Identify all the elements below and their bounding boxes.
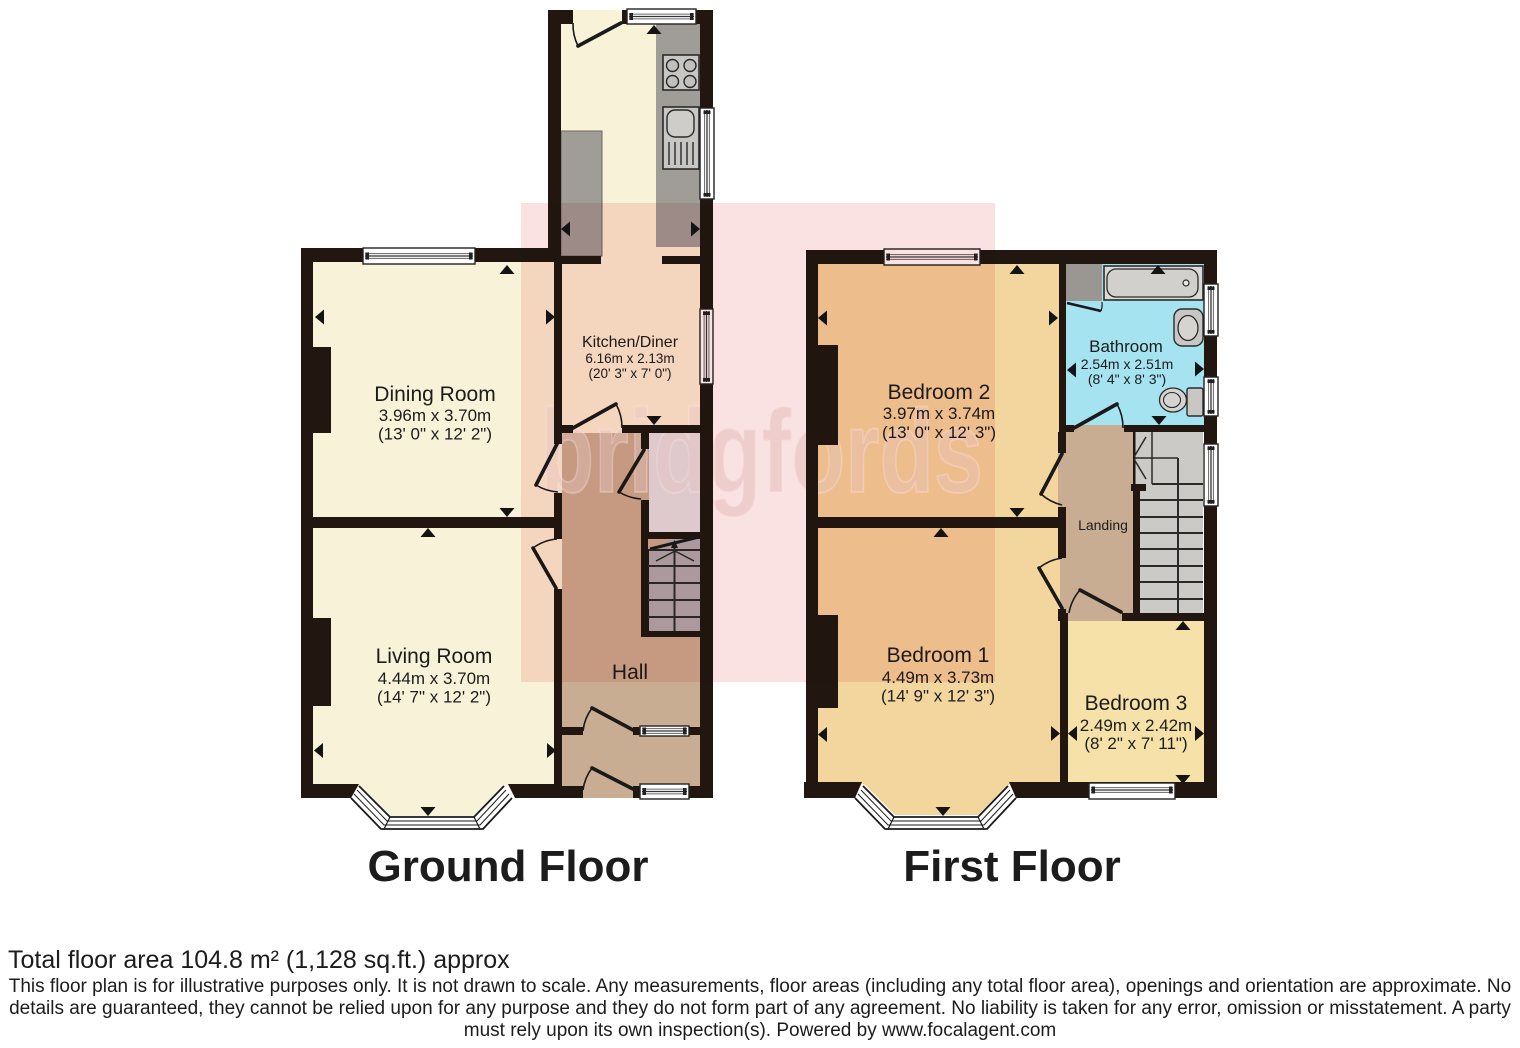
svg-text:3.96m x 3.70m: 3.96m x 3.70m (379, 406, 491, 425)
svg-text:(8' 4" x 8' 3"): (8' 4" x 8' 3") (1088, 371, 1166, 387)
svg-text:(14' 9" x 12' 3"): (14' 9" x 12' 3") (881, 687, 995, 706)
svg-text:Bathroom: Bathroom (1089, 337, 1163, 356)
svg-text:must rely upon its own inspect: must rely upon its own inspection(s). Po… (464, 1020, 1056, 1041)
svg-text:2.54m x 2.51m: 2.54m x 2.51m (1081, 356, 1174, 372)
svg-text:(8' 2" x 7' 11"): (8' 2" x 7' 11") (1084, 734, 1187, 753)
svg-text:Dining Room: Dining Room (374, 383, 495, 406)
svg-text:details are guaranteed, they c: details are guaranteed, they cannot be r… (9, 998, 1511, 1019)
svg-text:Landing: Landing (1078, 517, 1128, 533)
svg-text:(13' 0" x 12' 2"): (13' 0" x 12' 2") (378, 425, 492, 444)
svg-text:Ground Floor: Ground Floor (367, 842, 648, 891)
svg-text:Total floor area 104.8 m² (1,1: Total floor area 104.8 m² (1,128 sq.ft.)… (8, 946, 510, 974)
svg-text:2.49m x 2.42m: 2.49m x 2.42m (1080, 716, 1192, 735)
svg-text:First Floor: First Floor (903, 842, 1121, 891)
svg-text:4.44m x 3.70m: 4.44m x 3.70m (378, 669, 490, 688)
svg-text:(14' 7" x 12' 2"): (14' 7" x 12' 2") (377, 688, 491, 707)
svg-text:Bedroom 3: Bedroom 3 (1085, 692, 1188, 715)
svg-text:Living Room: Living Room (376, 645, 493, 668)
svg-text:This floor plan is for illustr: This floor plan is for illustrative purp… (9, 976, 1511, 997)
